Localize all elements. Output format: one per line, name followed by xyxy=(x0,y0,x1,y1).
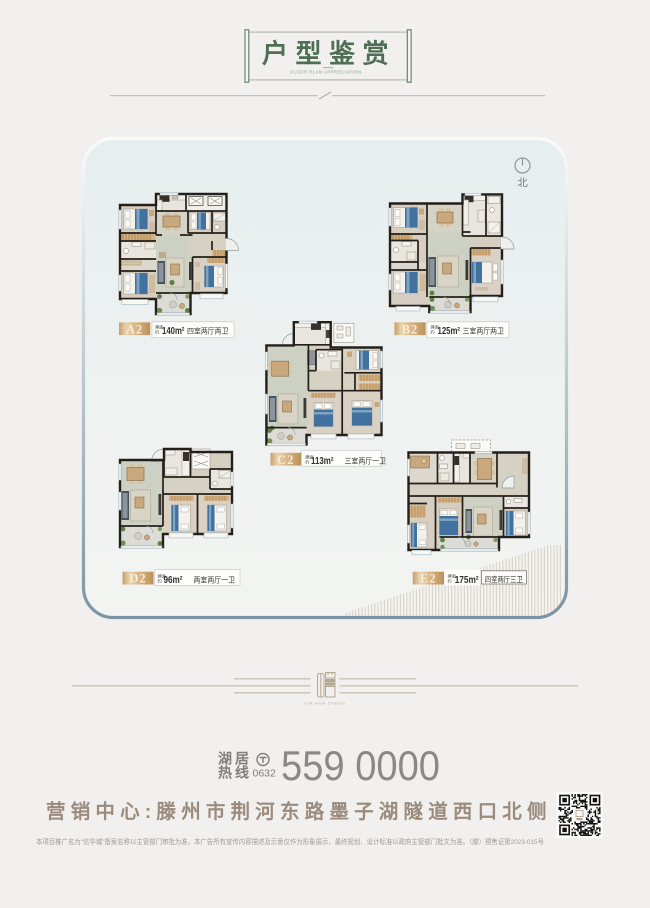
svg-text:三室两厅一卫: 三室两厅一卫 xyxy=(345,456,387,466)
svg-text:两室两厅一卫: 两室两厅一卫 xyxy=(194,575,236,585)
svg-text:559 0000: 559 0000 xyxy=(281,742,440,789)
svg-text:96m²: 96m² xyxy=(164,574,183,586)
svg-text:热线: 热线 xyxy=(218,765,252,781)
svg-text:营销中心:滕州市荆河东路墨子湖隧道西口北侧: 营销中心:滕州市荆河东路墨子湖隧道西口北侧 xyxy=(46,800,552,823)
svg-text:A2: A2 xyxy=(126,322,143,336)
svg-text:D2: D2 xyxy=(129,572,146,586)
svg-text:四室两厅三卫: 四室两厅三卫 xyxy=(485,574,523,584)
svg-text:户型鉴赏: 户型鉴赏 xyxy=(262,39,396,69)
svg-text:113m²: 113m² xyxy=(311,455,334,467)
svg-text:约: 约 xyxy=(305,458,309,465)
svg-text:C2: C2 xyxy=(277,453,294,467)
svg-text:本项目推广名为"信华城"备案名称以主管部门审批为准，本广告所: 本项目推广名为"信华城"备案名称以主管部门审批为准，本广告所有宣传内容描述及示意… xyxy=(36,837,544,846)
svg-text:125m²: 125m² xyxy=(438,325,461,337)
svg-text:约: 约 xyxy=(448,577,452,584)
svg-text:175m²: 175m² xyxy=(455,574,479,586)
svg-text:0632: 0632 xyxy=(253,768,277,780)
svg-text:E2: E2 xyxy=(420,572,437,586)
svg-text:B2: B2 xyxy=(402,322,419,336)
svg-text:四室两厅两卫: 四室两厅两卫 xyxy=(187,326,229,336)
svg-text:北: 北 xyxy=(517,177,528,189)
svg-text:约: 约 xyxy=(155,328,159,335)
svg-text:约: 约 xyxy=(158,577,162,584)
svg-text:XIN HUA CHENG: XIN HUA CHENG xyxy=(304,702,345,706)
svg-text:140m²: 140m² xyxy=(162,325,185,337)
svg-text:三室两厅两卫: 三室两厅两卫 xyxy=(463,326,505,336)
svg-text:约: 约 xyxy=(431,328,435,335)
svg-text:FLOOR PLAN APPRECIATION: FLOOR PLAN APPRECIATION xyxy=(291,70,362,75)
